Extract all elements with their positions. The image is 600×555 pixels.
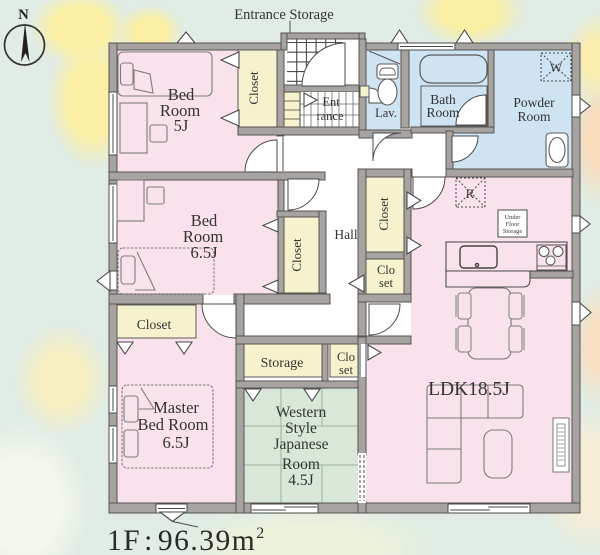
svg-text:6.5J: 6.5J [162, 433, 190, 452]
svg-text:Closet: Closet [376, 197, 391, 231]
svg-text:Under: Under [505, 214, 522, 221]
svg-text:Closet: Closet [246, 71, 261, 105]
svg-text:Floor: Floor [506, 221, 521, 228]
svg-text:Closet: Closet [289, 238, 304, 272]
svg-text:Room: Room [517, 109, 551, 124]
svg-text:Entrance Storage: Entrance Storage [234, 7, 333, 23]
svg-text:4.5J: 4.5J [288, 472, 313, 489]
svg-text:Clo: Clo [337, 350, 355, 364]
svg-text:N: N [18, 7, 29, 23]
svg-text:5J: 5J [174, 116, 189, 135]
svg-text:Room: Room [426, 105, 460, 120]
svg-text:set: set [379, 276, 393, 290]
svg-text:Style: Style [285, 420, 317, 437]
svg-text:Powder: Powder [513, 95, 555, 110]
svg-text:Bed Room: Bed Room [137, 415, 208, 434]
svg-text:W: W [550, 60, 563, 75]
svg-text:Clo: Clo [377, 263, 395, 277]
svg-text:LDK18.5J: LDK18.5J [428, 379, 510, 400]
svg-text:Closet: Closet [137, 317, 172, 332]
svg-text:Ent: Ent [322, 95, 340, 109]
svg-text:set: set [339, 363, 353, 377]
svg-text:rance: rance [316, 109, 344, 123]
svg-text:Room: Room [282, 456, 320, 473]
svg-text:R: R [466, 186, 475, 201]
svg-text:Hall: Hall [334, 227, 357, 242]
svg-text:Western: Western [276, 404, 327, 421]
svg-text:Storage: Storage [261, 356, 304, 371]
svg-text:Storage: Storage [503, 228, 522, 235]
svg-text:Lav.: Lav. [375, 106, 397, 120]
svg-text:6.5J: 6.5J [190, 243, 218, 262]
svg-text:1F:96.39m2: 1F:96.39m2 [107, 525, 266, 555]
svg-text:Japanese: Japanese [273, 436, 328, 453]
